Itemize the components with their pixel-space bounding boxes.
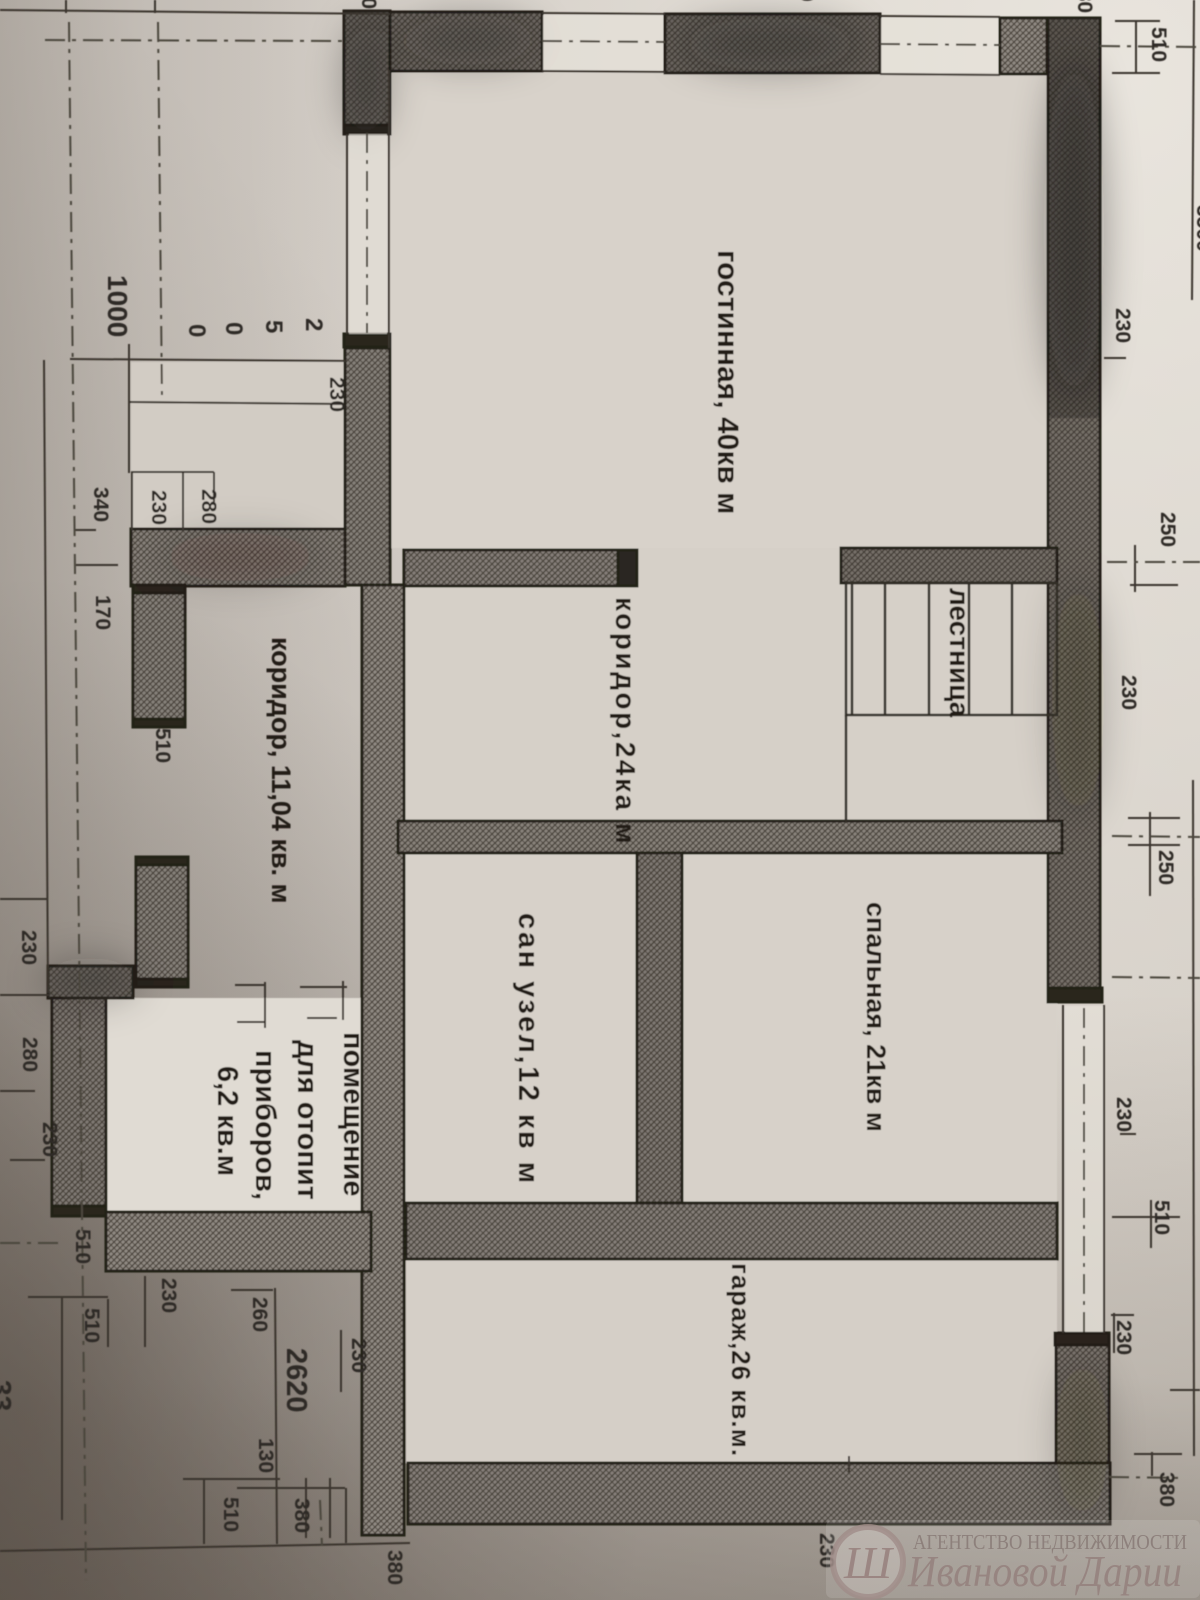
svg-text:лестница: лестница	[944, 588, 975, 718]
svg-text:33: 33	[0, 1380, 17, 1411]
svg-text:сан узел,12 кв м: сан узел,12 кв м	[512, 913, 544, 1186]
svg-text:280: 280	[197, 489, 220, 524]
svg-text:230: 230	[1117, 675, 1140, 710]
svg-text:230: 230	[325, 377, 348, 412]
svg-text:510: 510	[219, 1497, 242, 1532]
svg-text:230: 230	[38, 1122, 61, 1157]
svg-text:спальная, 21кв м: спальная, 21кв м	[861, 902, 891, 1132]
svg-text:3500: 3500	[1192, 205, 1200, 252]
svg-text:0: 0	[183, 324, 210, 337]
svg-text:510: 510	[1150, 1200, 1173, 1235]
svg-text:Ш: Ш	[843, 1537, 895, 1588]
svg-text:помещение: помещение	[337, 1032, 369, 1197]
svg-text:510: 510	[71, 1229, 94, 1264]
svg-text:230: 230	[157, 1278, 180, 1313]
svg-text:гараж,26 кв.м.: гараж,26 кв.м.	[726, 1263, 756, 1457]
svg-text:коридор,24ка м: коридор,24ка м	[610, 597, 641, 846]
svg-text:230: 230	[357, 0, 380, 9]
svg-text:230: 230	[147, 490, 170, 525]
svg-text:коридор, 11,04 кв. м: коридор, 11,04 кв. м	[266, 637, 296, 904]
svg-text:280: 280	[18, 1037, 41, 1072]
svg-text:Ивановой Дарии: Ивановой Дарии	[907, 1547, 1182, 1596]
svg-text:250: 250	[1154, 850, 1177, 885]
svg-text:380: 380	[383, 1550, 406, 1585]
svg-text:380: 380	[1073, 0, 1096, 13]
svg-text:0: 0	[220, 322, 247, 335]
svg-text:1000: 1000	[102, 275, 133, 337]
svg-text:0: 0	[795, 0, 818, 2]
svg-text:510: 510	[1147, 27, 1170, 62]
svg-text:380: 380	[1155, 1472, 1178, 1507]
svg-text:250: 250	[1156, 512, 1179, 547]
svg-text:380: 380	[290, 1498, 313, 1533]
svg-text:230: 230	[1112, 1320, 1135, 1355]
svg-text:2: 2	[300, 318, 327, 331]
svg-text:170: 170	[91, 595, 114, 630]
svg-text:2620: 2620	[280, 1348, 312, 1413]
svg-text:510: 510	[80, 1308, 103, 1343]
svg-text:230: 230	[1111, 308, 1134, 343]
svg-text:5: 5	[260, 320, 287, 333]
svg-text:гостинная, 40кв м: гостинная, 40кв м	[711, 250, 744, 514]
svg-text:230: 230	[1112, 1097, 1135, 1132]
svg-text:510: 510	[151, 728, 174, 763]
svg-text:приборов,: приборов,	[249, 1050, 281, 1200]
svg-text:260: 260	[248, 1297, 271, 1332]
svg-text:для отопит: для отопит	[291, 1040, 323, 1200]
svg-text:340: 340	[89, 487, 112, 522]
svg-text:230: 230	[347, 1338, 370, 1373]
svg-text:130: 130	[254, 1438, 277, 1473]
svg-text:6,2 кв.м: 6,2 кв.м	[211, 1066, 243, 1176]
svg-text:230: 230	[17, 930, 40, 965]
